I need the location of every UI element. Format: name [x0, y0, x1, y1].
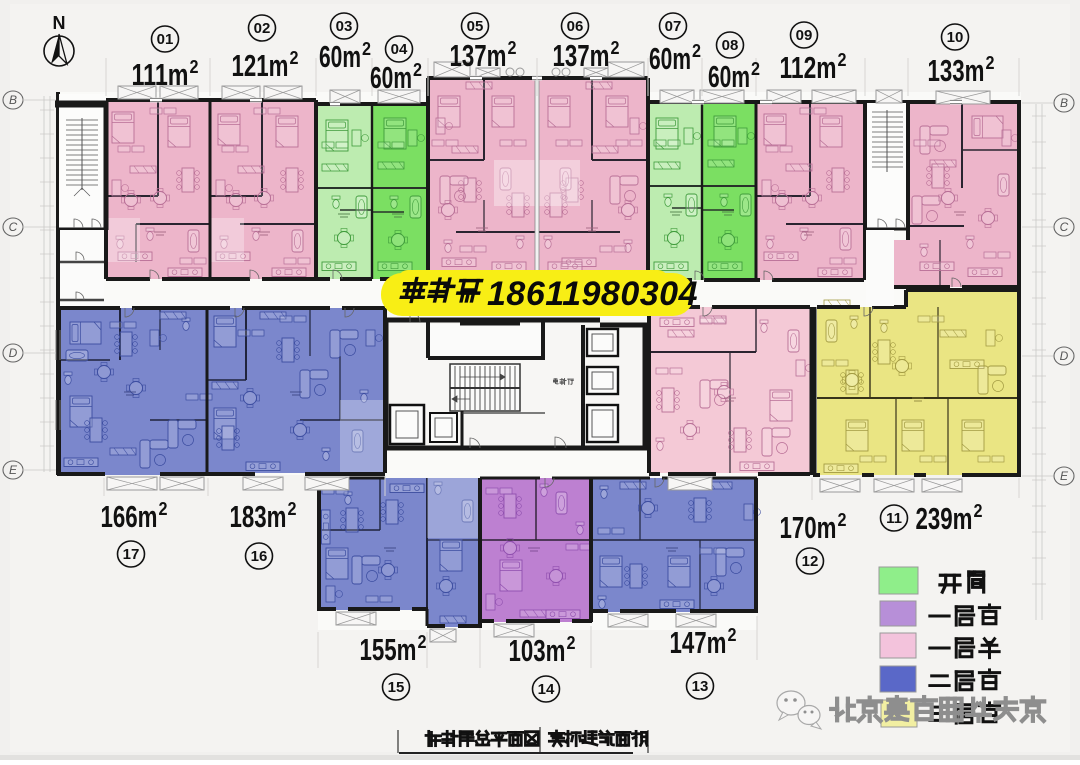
svg-text:2: 2 [838, 50, 847, 70]
svg-text:103m: 103m [509, 633, 566, 668]
svg-text:166m: 166m [101, 499, 158, 534]
svg-text:13: 13 [692, 678, 709, 695]
svg-text:60m: 60m [708, 59, 750, 94]
svg-text:14: 14 [538, 681, 555, 698]
svg-text:2: 2 [290, 48, 299, 68]
svg-text:2: 2 [190, 57, 199, 77]
svg-text:2: 2 [159, 499, 168, 519]
svg-text:05: 05 [467, 18, 484, 35]
svg-text:60m: 60m [370, 60, 412, 95]
svg-text:11: 11 [886, 510, 902, 527]
svg-text:06: 06 [567, 18, 584, 35]
svg-text:15: 15 [388, 679, 405, 696]
svg-text:D: D [1060, 349, 1069, 363]
svg-text:03: 03 [336, 18, 353, 35]
svg-text:E: E [1060, 469, 1069, 483]
svg-text:170m: 170m [780, 510, 837, 545]
svg-text:2: 2 [508, 38, 517, 58]
svg-text:137m: 137m [553, 38, 610, 73]
svg-text:D: D [9, 346, 18, 360]
svg-text:111m: 111m [132, 57, 189, 92]
svg-text:07: 07 [665, 18, 682, 35]
svg-text:02: 02 [254, 20, 271, 37]
svg-text:2: 2 [986, 53, 995, 73]
svg-text:04: 04 [391, 41, 408, 58]
svg-text:121m: 121m [232, 48, 289, 83]
svg-text:155m: 155m [360, 632, 417, 667]
svg-text:08: 08 [722, 37, 739, 54]
svg-text:133m: 133m [928, 53, 985, 88]
svg-text:239m: 239m [916, 501, 973, 536]
svg-text:137m: 137m [450, 38, 507, 73]
svg-text:183m: 183m [230, 499, 287, 534]
svg-text:2: 2 [288, 499, 297, 519]
svg-text:C: C [1060, 220, 1069, 234]
svg-text:B: B [9, 93, 17, 107]
svg-text:2: 2 [692, 41, 701, 61]
svg-text:2: 2 [611, 38, 620, 58]
svg-text:B: B [1060, 96, 1068, 110]
svg-text:2: 2 [728, 625, 737, 645]
svg-text:147m: 147m [670, 625, 727, 660]
svg-text:2: 2 [751, 59, 760, 79]
svg-text:2: 2 [362, 39, 371, 59]
svg-text:18611980304: 18611980304 [487, 275, 698, 313]
svg-text:16: 16 [251, 548, 268, 565]
svg-text:E: E [9, 463, 18, 477]
svg-text:12: 12 [802, 553, 819, 570]
svg-text:N: N [53, 13, 66, 33]
svg-text:01: 01 [157, 31, 174, 48]
svg-text:2: 2 [838, 510, 847, 530]
svg-text:17: 17 [123, 546, 140, 563]
svg-text:09: 09 [796, 27, 813, 44]
svg-text:2: 2 [974, 501, 983, 521]
svg-text:60m: 60m [649, 41, 691, 76]
svg-text:2: 2 [413, 60, 422, 80]
svg-text:112m: 112m [780, 50, 837, 85]
svg-text:10: 10 [947, 29, 964, 46]
svg-text:C: C [9, 220, 18, 234]
svg-text:60m: 60m [319, 39, 361, 74]
svg-text:2: 2 [418, 632, 427, 652]
svg-text:2: 2 [567, 633, 576, 653]
